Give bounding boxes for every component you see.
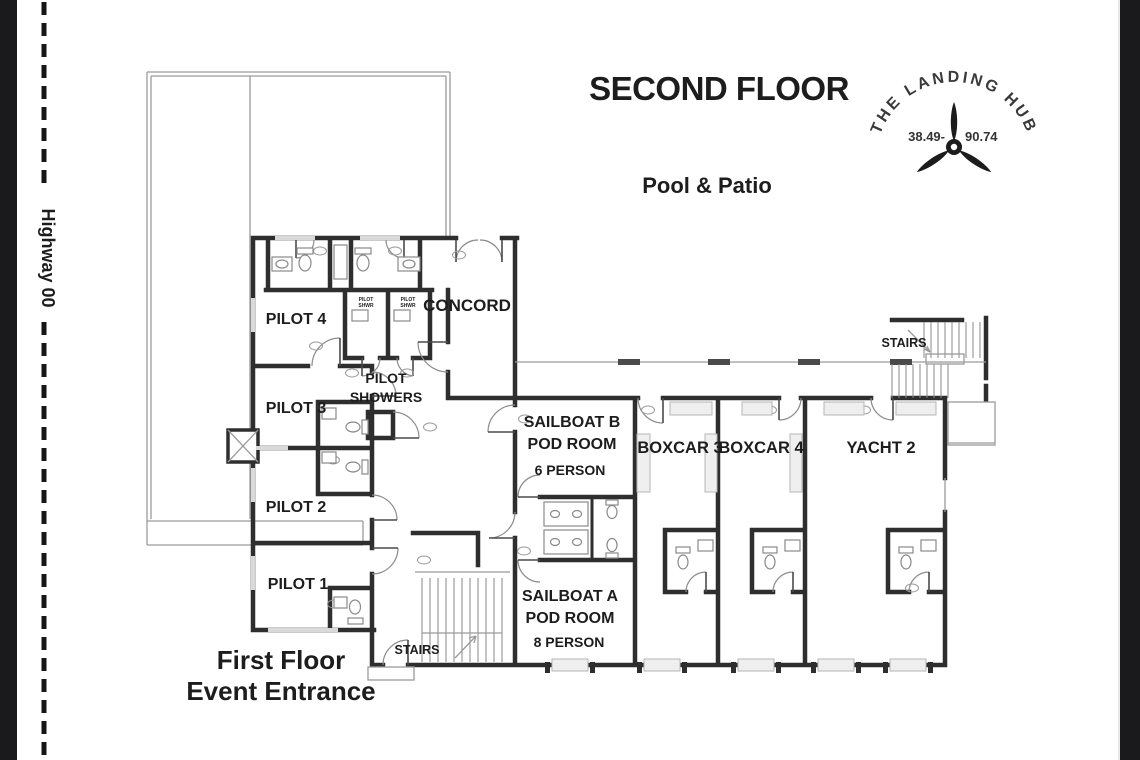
right-edge-highlight [1118,0,1120,760]
elevator-shaft [228,430,258,462]
highway-label: Highway 00 [38,208,58,307]
room-label-sailboat-a-capacity: 8 PERSON [534,634,605,650]
room-label-boxcar-3: BOXCAR 3 [637,439,722,457]
logo-right-number: 90.74 [965,129,998,144]
room-label-sailboat-a: SAILBOAT A [522,588,618,605]
room-label-sailboat-b-capacity: 6 PERSON [535,462,606,478]
floor-plan-canvas: Highway 00 SECOND FLOOR Pool & Patio Fir… [0,0,1140,760]
room-label-pilot-showers-1: PILOT [365,370,407,386]
exterior-landing [948,402,995,445]
page-titles: SECOND FLOOR Pool & Patio First Floor Ev… [186,70,849,706]
room-label-pilot-3: PILOT 3 [266,400,327,417]
room-label-sailboat-a-type: POD ROOM [526,610,615,627]
page-title: SECOND FLOOR [589,70,850,107]
room-label-yacht-2: YACHT 2 [846,439,915,457]
room-label-stairs-upper: STAIRS [882,336,927,350]
logo-left-number: 38.49- [908,129,945,144]
room-label-pilot-4: PILOT 4 [266,311,327,328]
room-label-stairs-lower: STAIRS [395,643,440,657]
stall-label-1b: SHWR [358,303,374,309]
room-label-boxcar-4: BOXCAR 4 [718,439,804,457]
room-label-pilot-1: PILOT 1 [268,576,329,593]
entrance-note-line1: First Floor [217,645,346,675]
pool-patio-label: Pool & Patio [642,173,772,198]
room-label-concord: CONCORD [423,296,511,315]
room-labels: PILOT 4 PILOT 3 PILOT 2 PILOT 1 CONCORD … [266,296,927,657]
left-photo-edge [0,0,17,760]
room-label-pilot-2: PILOT 2 [266,499,327,516]
room-label-sailboat-b: SAILBOAT B [524,414,621,431]
stall-label-2b: SHWR [400,303,416,309]
room-label-pilot-showers-2: SHOWERS [350,389,422,405]
logo: THE LANDING HUB 38.49- 90.74 [868,69,1040,175]
highway-line: Highway 00 [38,2,58,760]
right-photo-edge [1120,0,1140,760]
room-label-sailboat-b-type: POD ROOM [528,436,617,453]
entrance-note-line2: Event Entrance [186,676,375,706]
floorplan-page: Highway 00 SECOND FLOOR Pool & Patio Fir… [0,0,1140,760]
